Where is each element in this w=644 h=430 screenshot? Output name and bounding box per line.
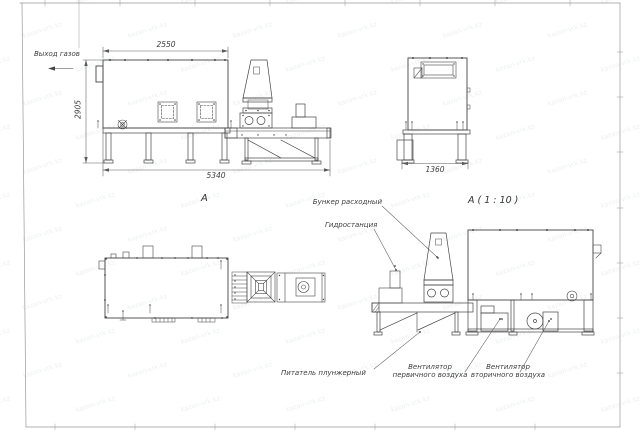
dim-5340 [103, 133, 330, 176]
feeder-flange-plan [232, 272, 247, 303]
dim-front-width-total: 5340 [191, 171, 241, 180]
gas-outlet-plan [99, 261, 105, 269]
view-front [48, 47, 331, 176]
plan-stud-symbols [107, 260, 222, 320]
side-hinge-1 [467, 88, 470, 92]
hopper-front [243, 60, 272, 113]
plan-top-tabs [111, 246, 202, 258]
drawing-canvas [0, 0, 644, 430]
feeder-housing-plan [277, 273, 325, 302]
side-hinge-2 [467, 105, 470, 109]
drawing-sheet: kazan-vrk.kzkazan-vrk.kzkazan-vrk.kzkaza… [0, 0, 644, 430]
fan-primary-label-line2: первичного воздуха [392, 371, 468, 379]
hatch-panel-2 [197, 102, 216, 122]
feeder-label: Питатель плунжерный [281, 369, 366, 377]
fan-secondary [527, 312, 558, 331]
dim-front-width-top: 2550 [146, 40, 186, 49]
dim-front-height: 2905 [74, 90, 83, 130]
hatch-panel-1 [158, 102, 177, 122]
feeder-truss [374, 312, 460, 335]
plan-bolts [104, 257, 228, 319]
section-bracket [593, 245, 601, 258]
furnace-body-side [408, 58, 467, 130]
view-label-side: А ( 1 : 10 ) [468, 195, 518, 206]
gas-outlet-label: Выход газов [34, 50, 80, 58]
callout-leaders [374, 206, 550, 372]
fan-secondary-label-line1: Вентилятор [470, 363, 546, 371]
furnace-body-front [103, 60, 228, 128]
hopper-plan [247, 272, 275, 302]
feeder-tube [372, 303, 473, 312]
bunker-label: Бункер расходный [312, 198, 382, 206]
side-hatch [421, 62, 456, 78]
fan-primary-label-line1: Вентилятор [392, 363, 468, 371]
hopper-fanbox-section [424, 285, 453, 302]
hydro-station [379, 265, 402, 303]
burner-port-section [567, 291, 577, 301]
ash-box-side [397, 140, 413, 160]
view-section [372, 206, 601, 372]
conveyor-front [225, 104, 331, 138]
hydro-label: Гидростанция [325, 221, 374, 229]
conveyor-truss-front [242, 138, 321, 164]
section-frame [466, 300, 594, 335]
hopper-section [424, 233, 453, 285]
fan-primary-label: Вентилятор первичного воздуха [392, 363, 468, 379]
furnace-frame-front [97, 120, 232, 163]
fan-secondary-label-line2: вторичного воздуха [470, 371, 546, 379]
fan-secondary-label: Вентилятор вторичного воздуха [470, 363, 546, 379]
plan-bolt-strips [152, 318, 215, 322]
gas-outlet-arrow [48, 66, 73, 70]
view-plan [99, 246, 325, 322]
view-label-front: А [201, 193, 208, 204]
feeder-fanbox-front [240, 113, 272, 128]
furnace-body-plan [105, 258, 228, 318]
dim-side-width: 1360 [415, 165, 455, 174]
gas-outlet-nozzle [96, 66, 103, 82]
furnace-body-section [468, 230, 593, 300]
dim-2905 [83, 60, 104, 163]
view-side [397, 57, 470, 169]
